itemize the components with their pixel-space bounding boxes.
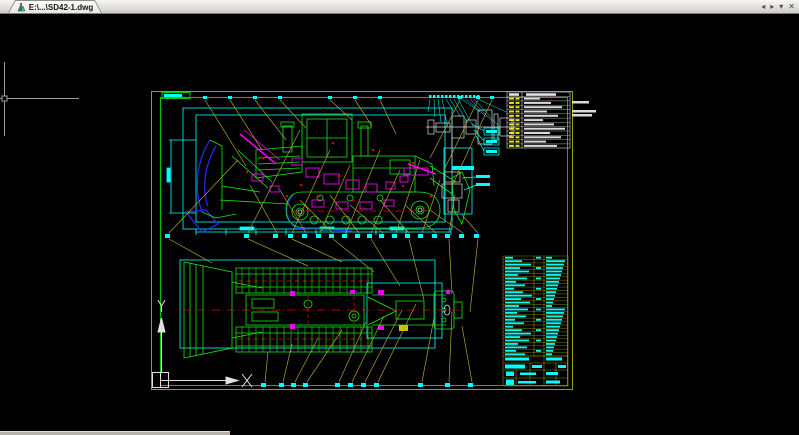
tab-controls: ◂ ▸ ▾ ✕	[761, 1, 795, 12]
app-icon	[17, 3, 26, 12]
ucs-icon	[153, 300, 253, 388]
top-view-bulldozer[interactable]	[180, 260, 462, 358]
tab-close-button[interactable]: ✕	[788, 1, 795, 12]
bom-table[interactable]	[503, 256, 568, 386]
detail-caption	[452, 166, 474, 170]
table-overflow-notes	[572, 101, 596, 117]
application-window: E:\...\SD42-1.dwg ◂ ▸ ▾ ✕	[0, 0, 799, 435]
title-block[interactable]	[505, 358, 566, 386]
tab-filename: E:\...\SD42-1.dwg	[29, 3, 93, 12]
crosshair-cursor	[0, 62, 79, 136]
zone-label	[164, 94, 182, 97]
drivetrain-detail[interactable]	[426, 95, 516, 212]
leader-lines[interactable]	[169, 100, 492, 382]
parameter-table[interactable]	[507, 92, 596, 148]
tab-scroll-left-button[interactable]: ◂	[761, 1, 765, 12]
tab-list-dropdown-button[interactable]: ▾	[779, 1, 783, 12]
cad-viewport[interactable]	[0, 0, 799, 435]
tab-scroll-right-button[interactable]: ▸	[770, 1, 774, 12]
ucs-y-label	[158, 300, 165, 312]
side-view-magenta-parts[interactable]	[252, 158, 428, 209]
file-tab[interactable]: E:\...\SD42-1.dwg	[8, 0, 102, 13]
title-bar: E:\...\SD42-1.dwg ◂ ▸ ▾ ✕	[0, 0, 799, 14]
bottom-panel-edge[interactable]	[0, 431, 230, 435]
